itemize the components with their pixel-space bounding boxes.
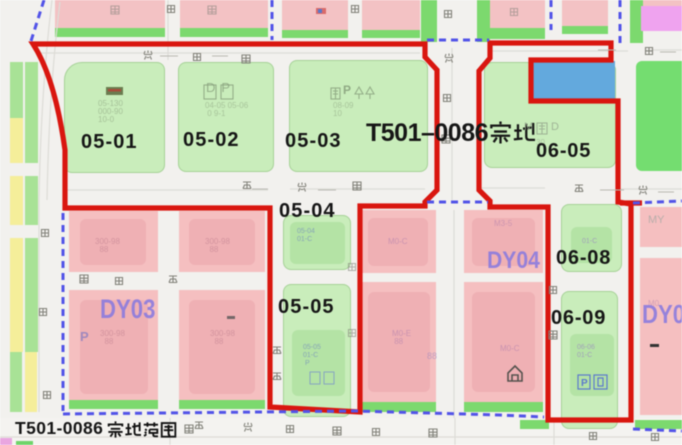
svg-text:P: P — [581, 378, 588, 389]
